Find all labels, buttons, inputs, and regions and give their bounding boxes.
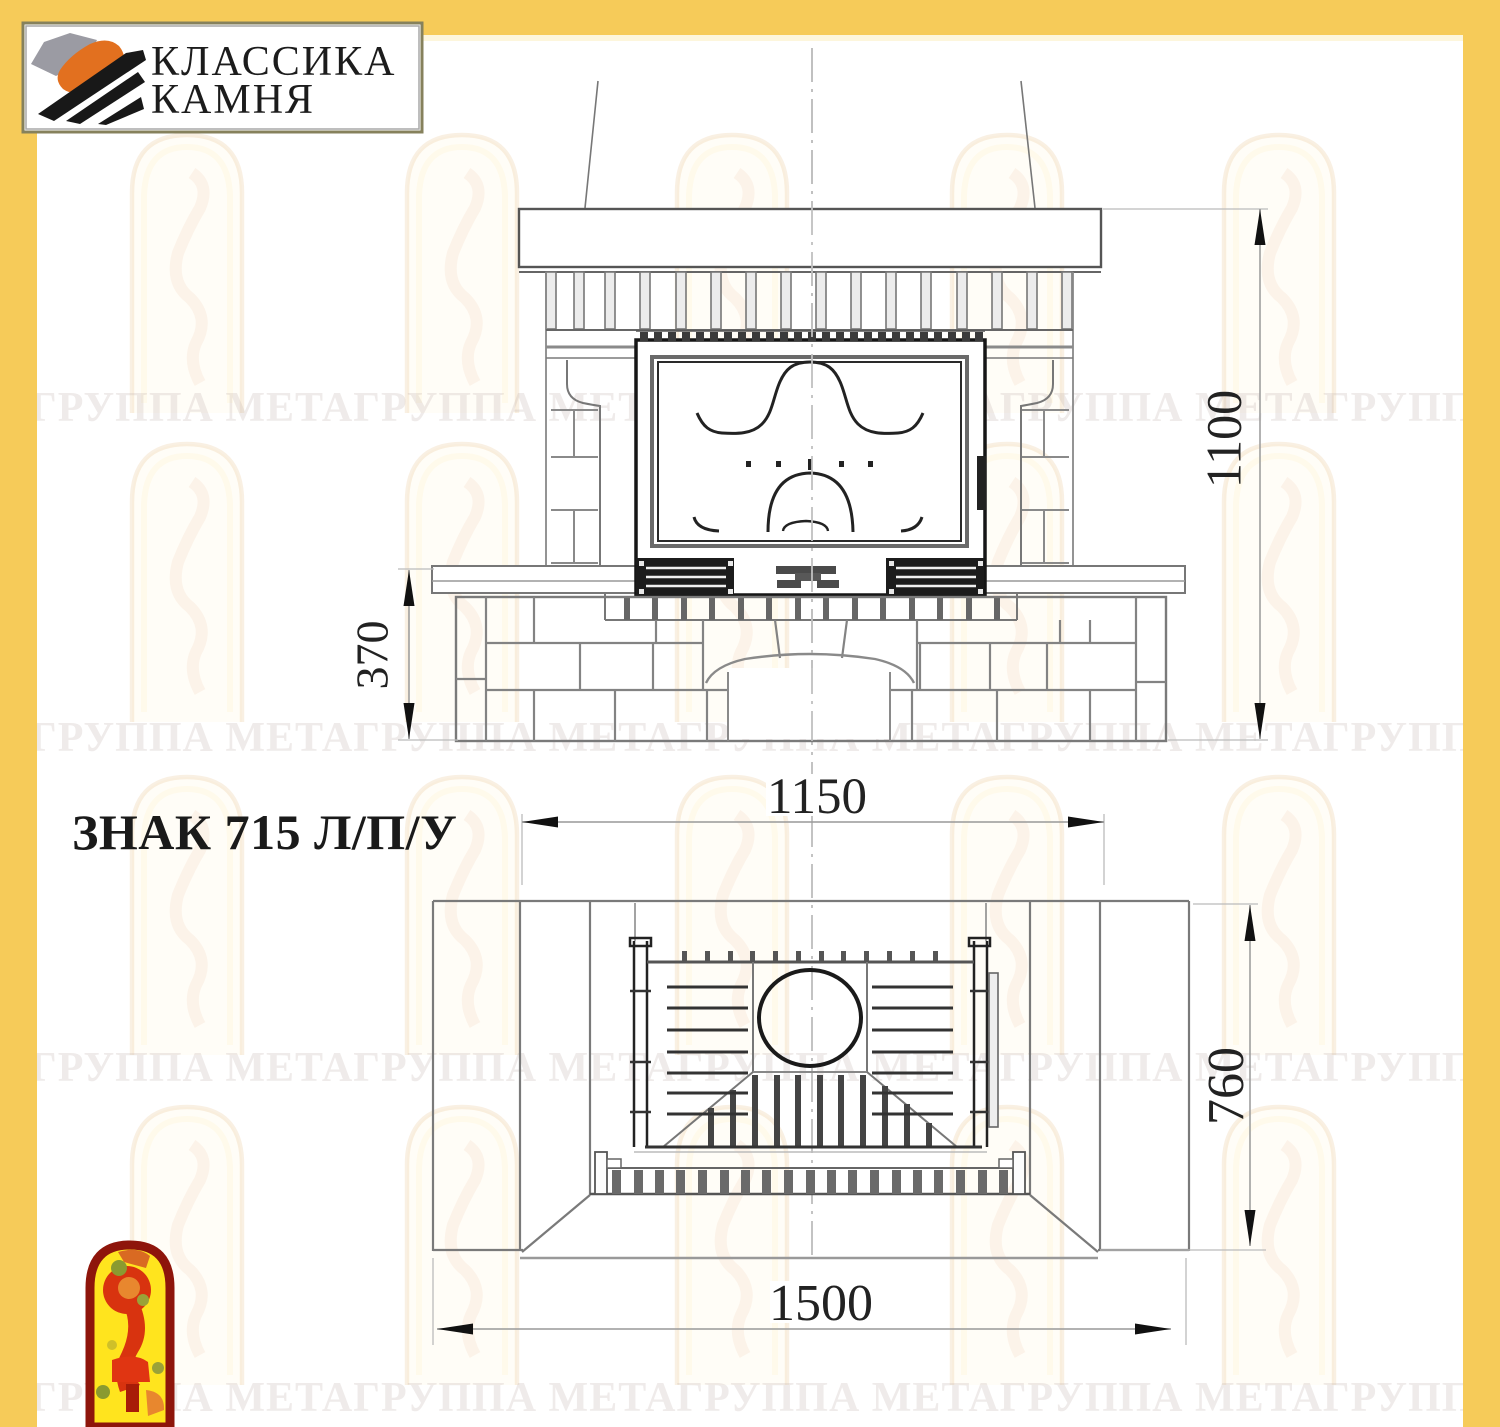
svg-text:760: 760 — [1198, 1047, 1255, 1125]
svg-text:ГРУППА МЕТАГРУППА МЕТАГРУППА М: ГРУППА МЕТАГРУППА МЕТАГРУППА МЕТАГРУППА … — [30, 1375, 1500, 1421]
svg-text:ЗНАК 715 Л/П/У: ЗНАК 715 Л/П/У — [72, 804, 457, 860]
svg-text:370: 370 — [347, 621, 398, 690]
svg-text:КАМНЯ: КАМНЯ — [151, 77, 315, 123]
svg-text:1150: 1150 — [767, 769, 867, 825]
svg-text:1100: 1100 — [1195, 390, 1251, 488]
svg-text:1500: 1500 — [769, 1275, 873, 1332]
svg-text:ГРУППА МЕТАГРУППА МЕТАГРУППА М: ГРУППА МЕТАГРУППА МЕТАГРУППА МЕТАГРУППА … — [30, 1045, 1500, 1091]
